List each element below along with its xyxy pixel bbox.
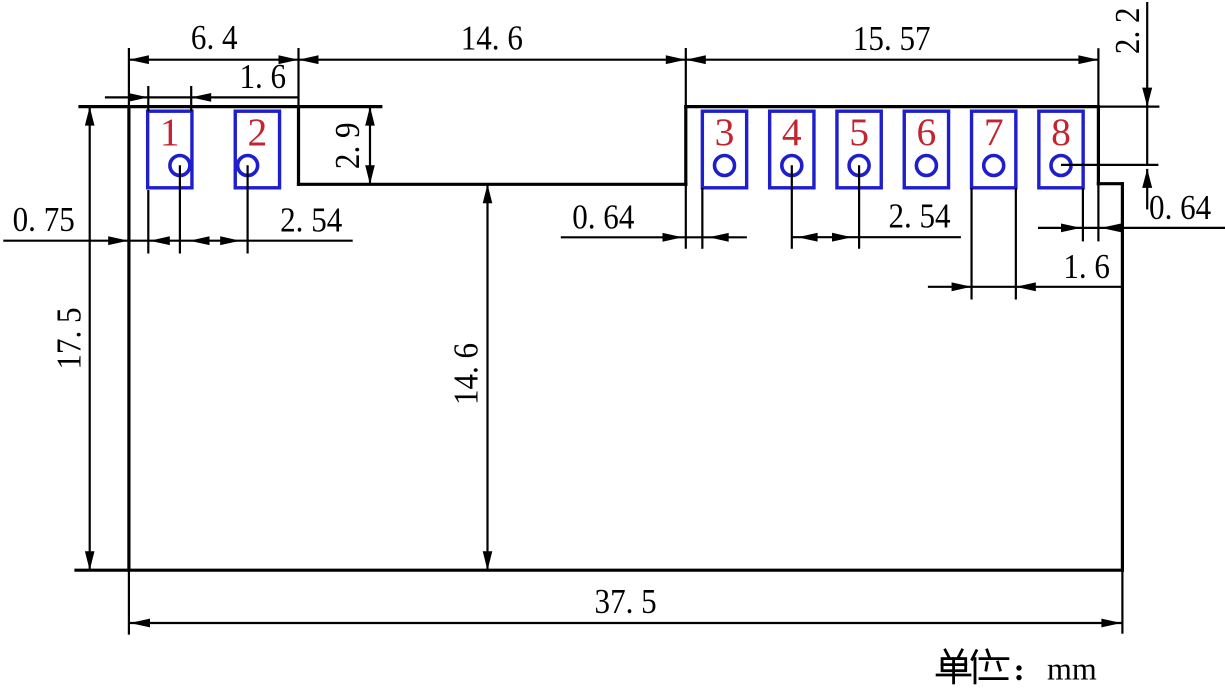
svg-text:2. 2: 2. 2 (1110, 8, 1148, 55)
svg-text:0. 64: 0. 64 (1149, 189, 1211, 227)
svg-text:mm: mm (1047, 650, 1097, 686)
svg-text:8: 8 (1051, 110, 1071, 154)
svg-text:7: 7 (984, 110, 1004, 154)
svg-text:5: 5 (849, 110, 869, 154)
svg-text:2. 9: 2. 9 (330, 123, 368, 170)
svg-text:6. 4: 6. 4 (191, 19, 238, 57)
svg-text:1. 6: 1. 6 (1063, 249, 1110, 287)
svg-text:1. 6: 1. 6 (240, 59, 287, 97)
svg-text:15. 57: 15. 57 (853, 21, 931, 59)
svg-text:4: 4 (782, 110, 802, 154)
svg-text:2. 54: 2. 54 (280, 202, 342, 240)
svg-text:3: 3 (715, 110, 735, 154)
svg-text:14. 6: 14. 6 (448, 343, 486, 405)
svg-text:1: 1 (160, 110, 180, 154)
svg-text:17. 5: 17. 5 (51, 307, 89, 369)
svg-text:14. 6: 14. 6 (461, 20, 523, 58)
svg-text:6: 6 (917, 110, 937, 154)
svg-text:0. 75: 0. 75 (13, 202, 75, 240)
svg-text:0. 64: 0. 64 (572, 199, 634, 237)
svg-text:2: 2 (248, 110, 268, 154)
svg-text:37. 5: 37. 5 (595, 583, 657, 621)
svg-text:2. 54: 2. 54 (888, 198, 950, 236)
